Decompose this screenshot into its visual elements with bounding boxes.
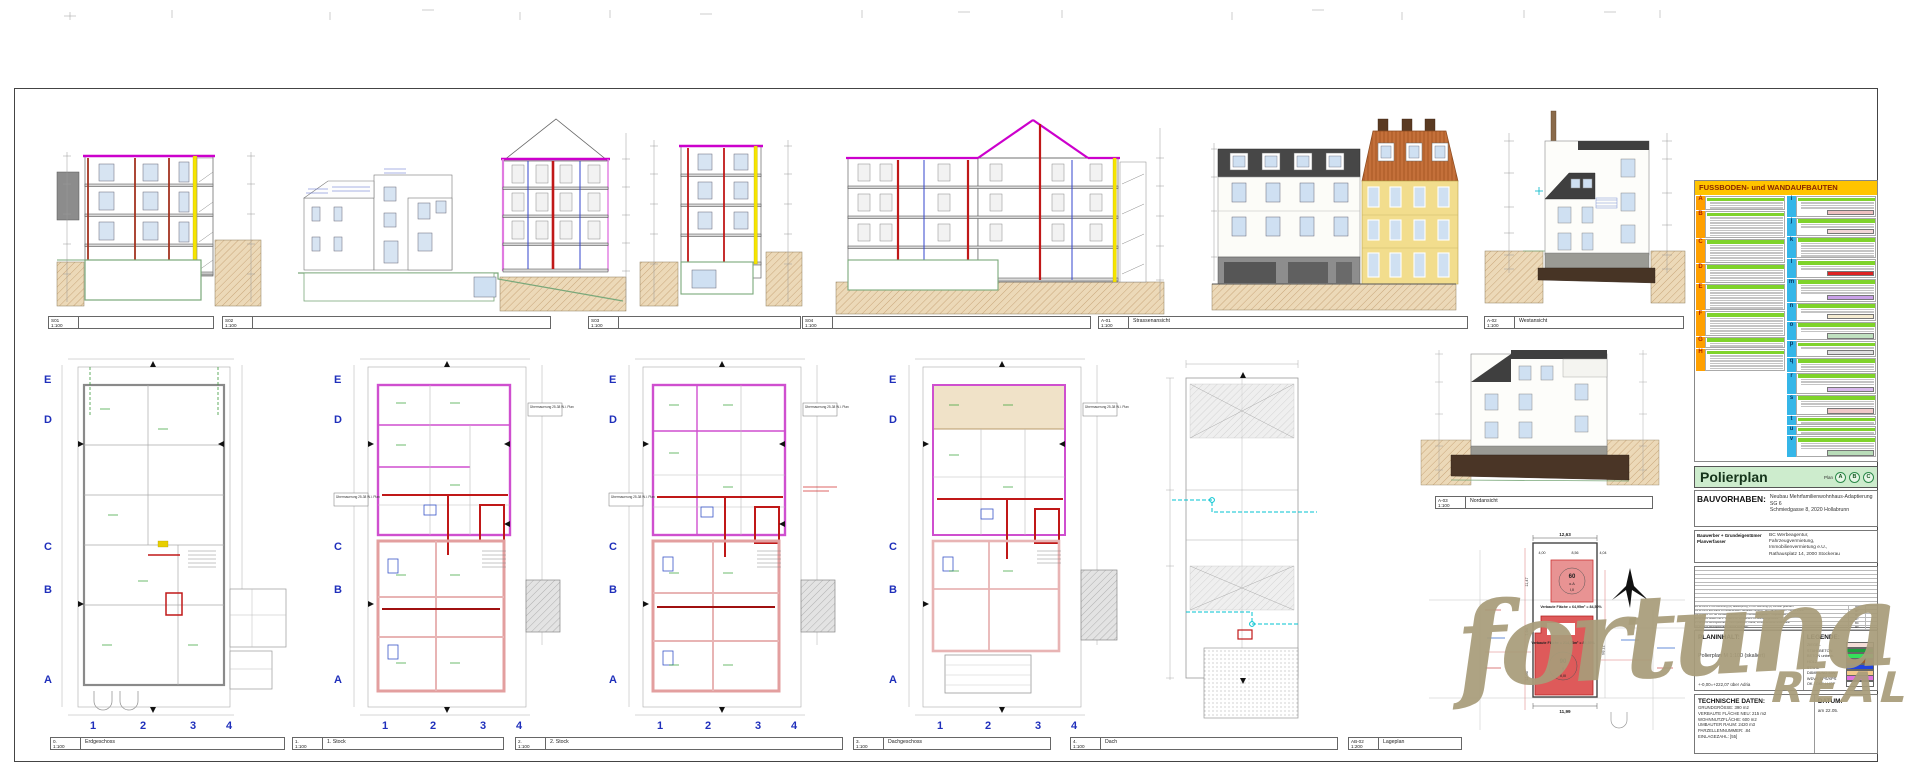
site-zone-value: II,III xyxy=(1560,674,1566,678)
grid-number: 2 xyxy=(140,720,146,732)
grid-letter: D xyxy=(44,414,52,426)
material-swatch xyxy=(1827,387,1874,392)
legend-key-letter: B xyxy=(1696,211,1705,238)
grid-number: 1 xyxy=(937,720,943,732)
legend-title: FUSSBODEN- und WANDAUFBAUTEN xyxy=(1695,181,1877,195)
drawing-scale: 1:100 xyxy=(856,744,881,749)
grid-letter: D xyxy=(889,414,897,426)
floorplan-2stock-drawing: Übermauerung 25-38 W.i. Plan Übermauerun… xyxy=(605,345,845,735)
material-swatch xyxy=(1827,229,1874,234)
adria-datum-line: +-0,00=+222,07 über Adria xyxy=(1698,682,1800,687)
uebermauerung-note: Übermauerung 25-38 W.i. Plan xyxy=(805,405,849,409)
legend-key-letter: C xyxy=(1696,239,1705,263)
label-dachgeschoss: 3.1:100 Dachgeschoss xyxy=(853,737,1051,750)
drawing-scale: 1:100 xyxy=(1101,323,1126,328)
north-arrow-icon xyxy=(1612,568,1648,608)
grid-letter: B xyxy=(44,584,52,596)
label-a01: A-011:100 Strassenansicht xyxy=(1098,316,1468,329)
planinhalt-label: PLANINHALT: xyxy=(1698,634,1800,641)
legende-label: LEGENDE: xyxy=(1807,634,1874,641)
grid-letter: A xyxy=(44,674,52,686)
grid-letter: B xyxy=(334,584,342,596)
top-dimension-ticks xyxy=(0,0,1920,86)
material-swatch xyxy=(1827,408,1874,413)
technische-daten-label: TECHNISCHE DATEN: xyxy=(1698,698,1811,705)
grid-number: 3 xyxy=(1035,720,1041,732)
drawing-name: Erdgeschoss xyxy=(81,738,284,749)
project-label: BAUVORHABEN: xyxy=(1695,491,1768,526)
drawing-scale: 1:100 xyxy=(591,323,616,328)
planinhalt-text: Polierplan M 1:100 (skaliert) xyxy=(1698,653,1800,682)
grid-number: 4 xyxy=(516,720,523,732)
drawing-name: Nordansicht xyxy=(1466,497,1652,508)
floorplan-dach-drawing xyxy=(1152,350,1337,732)
grid-letter: C xyxy=(44,541,52,553)
grid-letter: C xyxy=(889,541,897,553)
owner-label: Bauwerber + Grundeigentümer Planverfasse… xyxy=(1695,531,1767,562)
drawing-scale: 1:100 xyxy=(225,323,250,328)
material-swatch xyxy=(1827,295,1874,300)
elevation-a02-drawing xyxy=(1483,103,1688,325)
site-dimension: 4,00 xyxy=(1539,551,1546,555)
drawing-name: 1. Stock xyxy=(323,738,503,749)
grid-letter: E xyxy=(889,374,896,386)
label-s04: S041:100 xyxy=(802,316,1091,329)
plan-marker-c: C xyxy=(1863,472,1874,483)
legend-right-column: i j k l m n o p q r s t u v xyxy=(1786,195,1877,459)
site-dimension: 4,04 xyxy=(1600,551,1607,555)
label-lageplan: AB-021:200 Lageplan xyxy=(1348,737,1462,750)
polierplan-sheet: S011:100 S021:100 S031:100 S041:100 A-01… xyxy=(0,0,1920,768)
datum-label: DATUM: xyxy=(1818,698,1874,705)
drawing-name xyxy=(619,317,800,328)
grid-number: 4 xyxy=(1071,720,1078,732)
legend-key-letter: m xyxy=(1787,279,1796,302)
site-dimension: 8,56 xyxy=(1572,551,1579,555)
section-s03-drawing xyxy=(636,112,806,317)
drawing-scale: 1:100 xyxy=(1073,744,1098,749)
grid-letter: C xyxy=(334,541,342,553)
grid-number: 1 xyxy=(657,720,663,732)
grid-letter: E xyxy=(609,374,616,386)
section-s01-drawing xyxy=(55,112,265,312)
legend-key-letter: n xyxy=(1787,303,1796,321)
owner-info-box: Bauwerber + Grundeigentümer Planverfasse… xyxy=(1694,530,1878,563)
technical-row: EINLAGEZAHL: [55] xyxy=(1698,734,1811,740)
datum-value: am 22.05. xyxy=(1818,708,1874,713)
grid-letter: D xyxy=(334,414,342,426)
legend-key-letter: s xyxy=(1787,395,1796,416)
drawing-scale: 1:200 xyxy=(1351,744,1376,749)
material-swatch xyxy=(1827,450,1874,455)
plan-marker-a: A xyxy=(1835,472,1846,483)
legend-key-letter: H xyxy=(1696,349,1705,371)
legend-left-column: A B C D E F G H xyxy=(1695,195,1786,459)
site-dimension: 12,06 xyxy=(1525,671,1529,681)
grid-number: 2 xyxy=(705,720,711,732)
plan-marker-b: B xyxy=(1849,472,1860,483)
site-area-text: Verbaute Fläche = 214,73m² = 84,36% xyxy=(1531,641,1595,645)
site-dimension: 12,63 xyxy=(1559,532,1571,537)
revision-table: 22.11.2015 1.OG Wohnung (A) Bekämpfung, … xyxy=(1694,566,1878,628)
material-swatch xyxy=(1827,271,1874,276)
label-a02: A-021:100 Westansicht xyxy=(1484,316,1684,329)
grid-letter: E xyxy=(44,374,51,386)
legend-key-letter: D xyxy=(1696,264,1705,283)
material-swatch xyxy=(1827,314,1874,319)
section-s04-drawing xyxy=(828,100,1173,330)
label-erdgeschoss: 0.1:100 Erdgeschoss xyxy=(50,737,285,750)
site-zone-value: 90 xyxy=(1560,659,1567,665)
elevation-a01-drawing xyxy=(1210,103,1460,325)
drawing-scale: 1:100 xyxy=(1438,503,1463,508)
grid-number: 1 xyxy=(90,720,96,732)
legend-key-letter: k xyxy=(1787,237,1796,259)
plan-word: Plan xyxy=(1824,475,1833,480)
legend-key-letter: u xyxy=(1787,426,1796,435)
grid-number: 1 xyxy=(382,720,388,732)
technical-data-box: TECHNISCHE DATEN: GRUNDGRÖSSE: 390 m2 VE… xyxy=(1694,694,1878,754)
grid-number: 4 xyxy=(226,720,233,732)
material-swatch xyxy=(1827,333,1874,338)
grid-letter: A xyxy=(334,674,342,686)
drawing-scale: 1:100 xyxy=(51,323,76,328)
legend-key-letter: j xyxy=(1787,218,1796,236)
grid-letter: B xyxy=(609,584,617,596)
site-dimension: 11,99 xyxy=(1559,709,1571,714)
label-dach: 4.1:100 Dach xyxy=(1070,737,1338,750)
grid-letter: B xyxy=(889,584,897,596)
owner-text: BC Werbeagentur, Fahrzeugvermietung, Imm… xyxy=(1767,531,1842,562)
site-area-text: Verbaute Fläche = 64,95m² = 84,50% xyxy=(1540,605,1602,609)
drawing-name: Lageplan xyxy=(1379,738,1461,749)
drawing-scale: 1:100 xyxy=(53,744,78,749)
grid-letter: E xyxy=(334,374,341,386)
material-swatch xyxy=(1827,210,1874,215)
drawing-name: Dachgeschoss xyxy=(884,738,1050,749)
plan-title: Polierplan xyxy=(1695,469,1824,485)
site-zone-value: I,II xyxy=(1570,588,1574,592)
floor-wall-buildup-legend: FUSSBODEN- und WANDAUFBAUTEN A B C D E F… xyxy=(1694,180,1878,462)
elevation-a03-drawing xyxy=(1415,340,1665,495)
grid-letter: C xyxy=(609,541,617,553)
section-s02-drawing xyxy=(288,103,633,331)
label-a03: A-031:100 Nordansicht xyxy=(1435,496,1653,509)
floorplan-erdgeschoss-drawing: E D C B A 1 2 3 4 xyxy=(38,345,293,735)
grid-number: 2 xyxy=(985,720,991,732)
label-1stock: 1.1:100 1. Stock xyxy=(292,737,504,750)
drawing-name xyxy=(79,317,213,328)
drawing-name xyxy=(833,317,1090,328)
floorplan-dachgeschoss-drawing: Übermauerung 25-38 W.i. Plan E D C B A 1… xyxy=(885,345,1125,735)
plan-content-and-legend-box: PLANINHALT: Polierplan M 1:100 (skaliert… xyxy=(1694,630,1878,691)
project-info-box: BAUVORHABEN: Neubau Mehrfamilienwohnhaus… xyxy=(1694,490,1878,527)
legend-key-letter: v xyxy=(1787,436,1796,457)
plan-title-bar: Polierplan Plan A B C xyxy=(1694,466,1878,488)
grid-number: 3 xyxy=(755,720,761,732)
drawing-scale: 1:100 xyxy=(518,744,543,749)
drawing-name xyxy=(253,317,550,328)
floorplan-1stock-drawing: Übermauerung 25-38 W.i. Plan Übermauerun… xyxy=(330,345,570,735)
legend-key-letter: F xyxy=(1696,311,1705,335)
site-dimension: 7,94 xyxy=(1525,628,1529,635)
legend-key-letter: o xyxy=(1787,322,1796,340)
uebermauerung-note: Übermauerung 25-38 W.i. Plan xyxy=(336,495,380,499)
drawing-name: 2. Stock xyxy=(546,738,842,749)
legend-key-letter: q xyxy=(1787,358,1796,372)
label-2stock: 2.1:100 2. Stock xyxy=(515,737,843,750)
material-swatch xyxy=(1827,350,1874,355)
drawing-name: Strassenansicht xyxy=(1129,317,1467,328)
legend-key-letter: p xyxy=(1787,341,1796,357)
drawing-name: Dach xyxy=(1101,738,1337,749)
uebermauerung-note: Übermauerung 25-38 W.i. Plan xyxy=(1085,405,1129,409)
label-s03: S031:100 xyxy=(588,316,801,329)
legend-key-letter: G xyxy=(1696,337,1705,349)
site-dimension: 27,94 xyxy=(1601,645,1605,655)
legend-key-letter: A xyxy=(1696,196,1705,210)
label-s01: S011:100 xyxy=(48,316,214,329)
grid-number: 3 xyxy=(480,720,486,732)
site-dimension: 11,47 xyxy=(1525,577,1529,586)
siteplan-lageplan-drawing: 60 o.A I,II Verbaute Fläche = 64,95m² = … xyxy=(1425,540,1690,735)
grid-letter: A xyxy=(609,674,617,686)
grid-number: 3 xyxy=(190,720,196,732)
legend-key-letter: r xyxy=(1787,373,1796,394)
drawing-scale: 1:100 xyxy=(295,744,320,749)
label-s02: S021:100 xyxy=(222,316,551,329)
drawing-name: Westansicht xyxy=(1515,317,1683,328)
grid-number: 4 xyxy=(791,720,798,732)
legend-key-letter: i xyxy=(1787,196,1796,217)
drawing-scale: 1:100 xyxy=(805,323,830,328)
legend-key-letter: E xyxy=(1696,284,1705,311)
legend-key-letter: l xyxy=(1787,259,1796,277)
grid-letter: A xyxy=(889,674,897,686)
grid-letter: D xyxy=(609,414,617,426)
project-text: Neubau Mehrfamilienwohnhaus-Adaptierung … xyxy=(1768,491,1877,526)
site-zone-value: o.A xyxy=(1569,582,1575,586)
grid-number: 2 xyxy=(430,720,436,732)
legende-item: OK / OKF / HOF xyxy=(1807,681,1874,687)
drawing-scale: 1:100 xyxy=(1487,323,1512,328)
legend-key-letter: t xyxy=(1787,416,1796,425)
site-zone-value: 60 xyxy=(1569,574,1576,580)
uebermauerung-note: Übermauerung 25-38 W.i. Plan xyxy=(530,405,574,409)
uebermauerung-note: Übermauerung 25-38 W.i. Plan xyxy=(611,495,655,499)
legende-swatch xyxy=(1846,681,1874,687)
